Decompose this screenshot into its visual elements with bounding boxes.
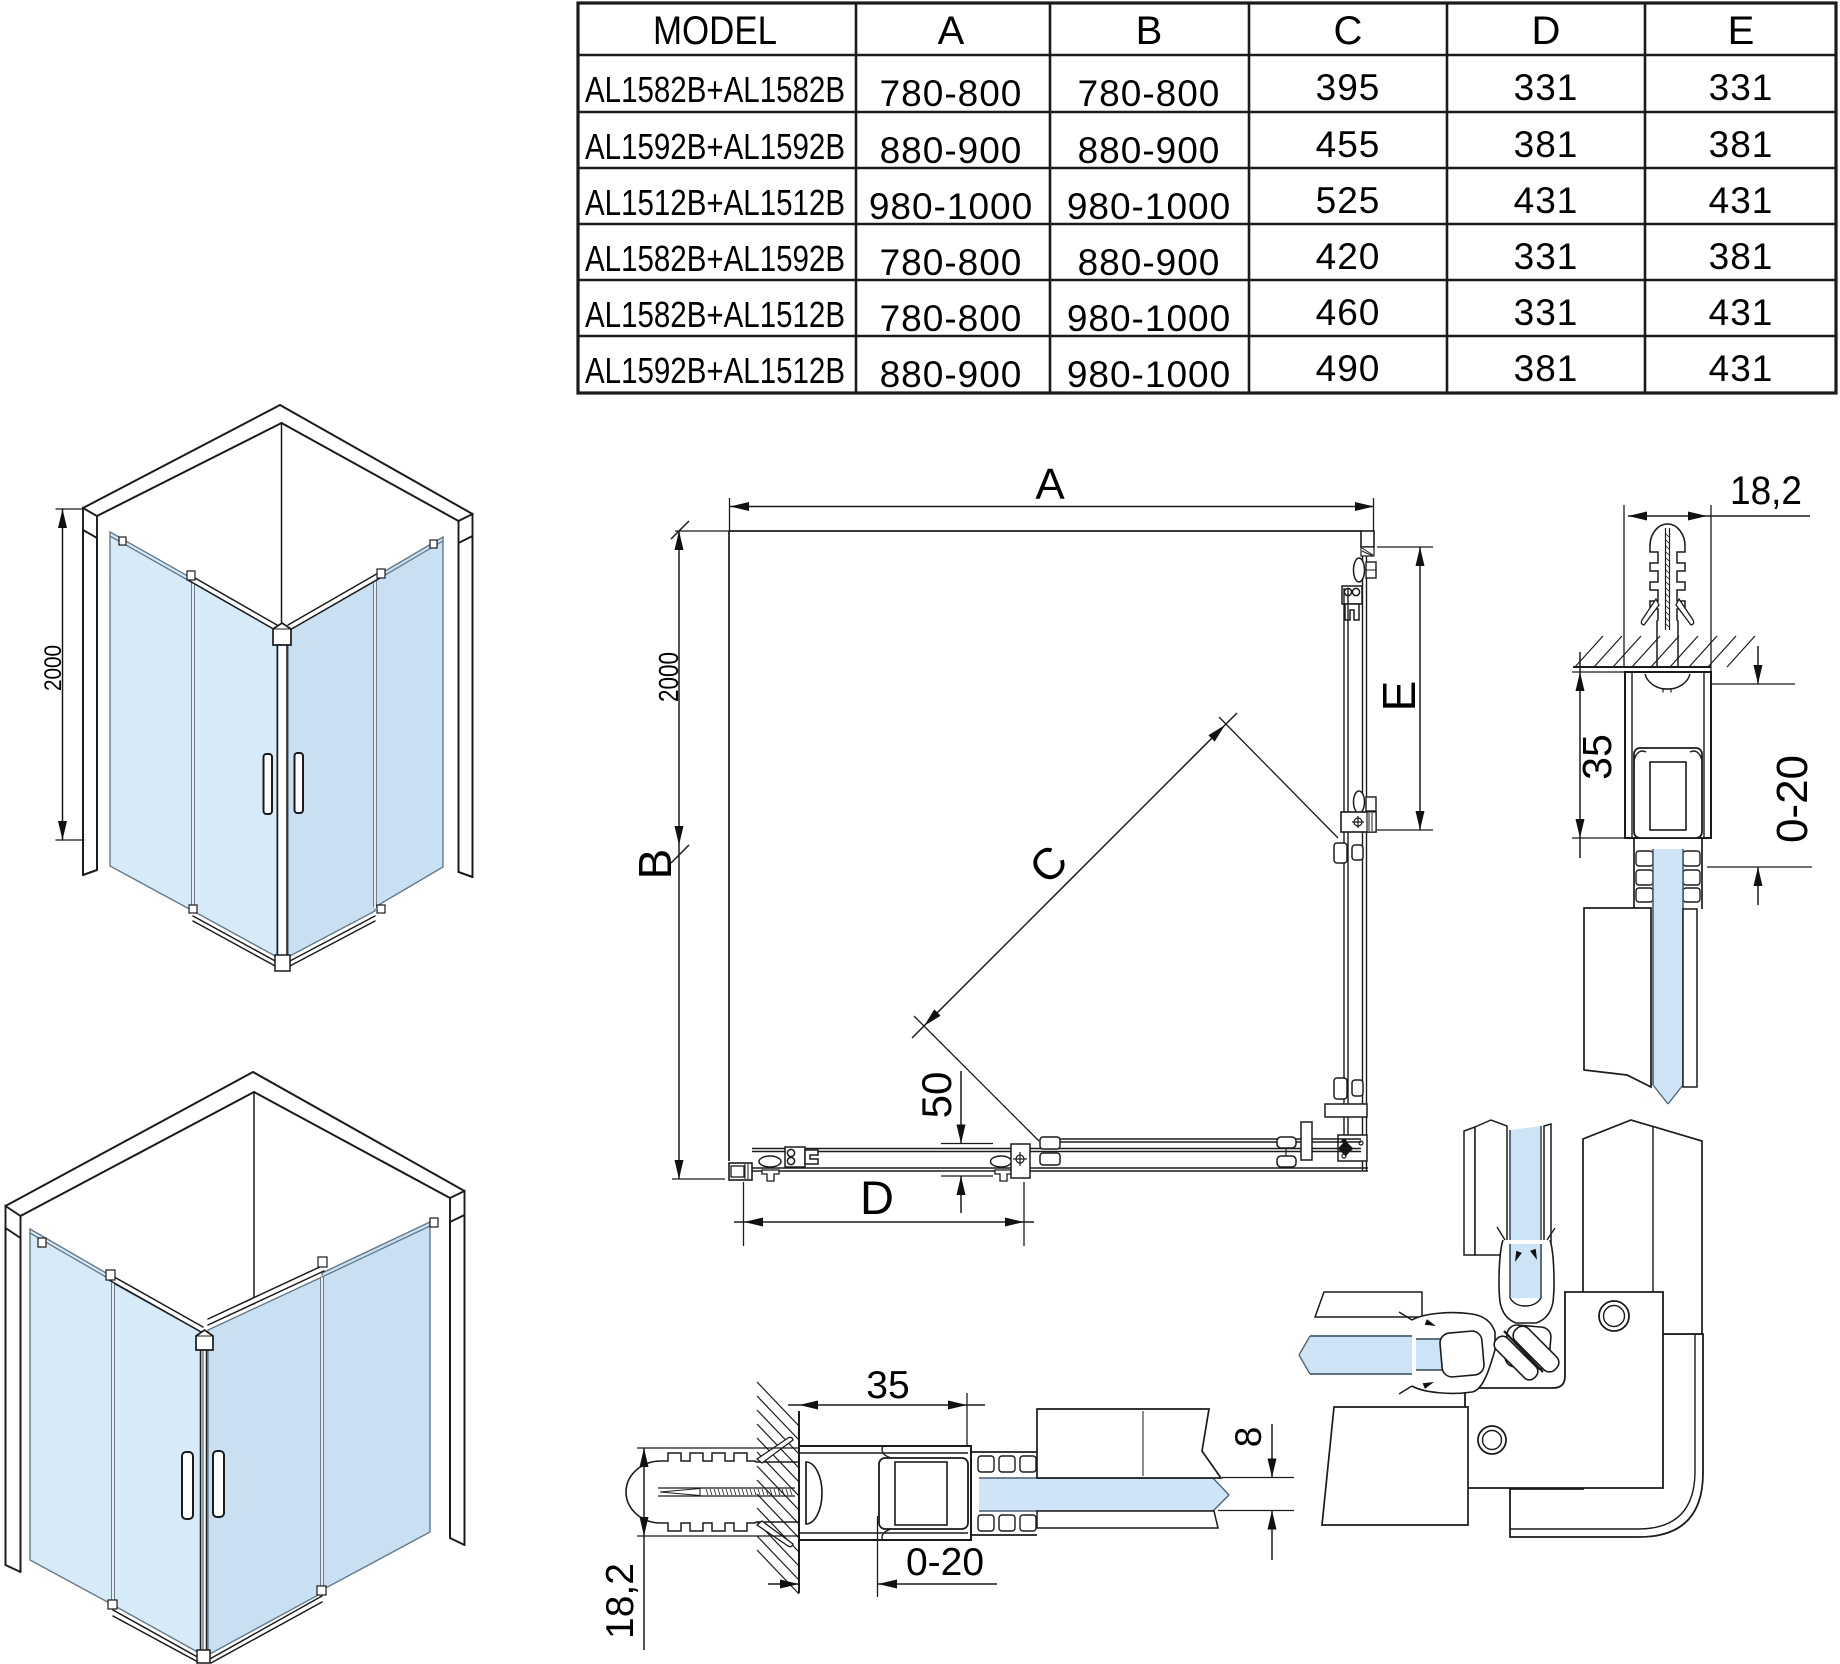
svg-text:381: 381: [1514, 348, 1579, 389]
svg-text:B: B: [1136, 9, 1163, 53]
svg-text:980-1000: 980-1000: [1067, 354, 1231, 395]
svg-text:395: 395: [1316, 67, 1381, 108]
svg-text:2000: 2000: [653, 652, 684, 702]
svg-text:880-900: 880-900: [880, 130, 1023, 171]
svg-text:35: 35: [866, 1364, 909, 1407]
svg-text:D: D: [860, 1171, 894, 1224]
svg-text:880-900: 880-900: [1078, 242, 1221, 283]
svg-text:MODEL: MODEL: [653, 9, 777, 53]
svg-text:E: E: [1728, 9, 1755, 53]
svg-text:AL1512B+AL1512B: AL1512B+AL1512B: [585, 182, 845, 223]
svg-text:490: 490: [1316, 348, 1381, 389]
svg-text:431: 431: [1514, 180, 1579, 221]
svg-text:420: 420: [1316, 236, 1381, 277]
svg-text:331: 331: [1514, 67, 1579, 108]
svg-text:E: E: [1373, 681, 1425, 712]
svg-text:455: 455: [1316, 124, 1381, 165]
svg-text:980-1000: 980-1000: [869, 186, 1033, 227]
svg-text:AL1592B+AL1592B: AL1592B+AL1592B: [585, 126, 845, 167]
svg-text:D: D: [1532, 9, 1561, 53]
svg-text:381: 381: [1514, 124, 1579, 165]
svg-text:18,2: 18,2: [599, 1563, 642, 1639]
svg-text:780-800: 780-800: [880, 298, 1023, 339]
svg-text:431: 431: [1709, 292, 1774, 333]
svg-text:50: 50: [913, 1072, 960, 1119]
svg-text:431: 431: [1709, 348, 1774, 389]
svg-text:8: 8: [1228, 1427, 1269, 1448]
svg-text:AL1592B+AL1512B: AL1592B+AL1512B: [585, 350, 845, 391]
svg-text:0-20: 0-20: [906, 1541, 984, 1584]
svg-text:880-900: 880-900: [1078, 130, 1221, 171]
svg-text:780-800: 780-800: [1078, 73, 1221, 114]
svg-text:C: C: [1020, 836, 1077, 893]
svg-text:331: 331: [1514, 236, 1579, 277]
svg-text:980-1000: 980-1000: [1067, 186, 1231, 227]
svg-text:780-800: 780-800: [880, 73, 1023, 114]
svg-text:381: 381: [1709, 236, 1774, 277]
svg-text:A: A: [938, 9, 965, 53]
svg-text:AL1582B+AL1582B: AL1582B+AL1582B: [585, 69, 845, 110]
svg-text:431: 431: [1709, 180, 1774, 221]
svg-text:AL1582B+AL1592B: AL1582B+AL1592B: [585, 238, 845, 279]
svg-text:B: B: [629, 849, 681, 880]
svg-text:525: 525: [1316, 180, 1381, 221]
svg-text:331: 331: [1709, 67, 1774, 108]
svg-text:381: 381: [1709, 124, 1774, 165]
svg-text:780-800: 780-800: [880, 242, 1023, 283]
svg-text:980-1000: 980-1000: [1067, 298, 1231, 339]
svg-text:331: 331: [1514, 292, 1579, 333]
svg-text:C: C: [1334, 9, 1363, 53]
svg-text:460: 460: [1316, 292, 1381, 333]
svg-text:880-900: 880-900: [880, 354, 1023, 395]
svg-text:2000: 2000: [40, 645, 67, 691]
svg-text:AL1582B+AL1512B: AL1582B+AL1512B: [585, 294, 845, 335]
svg-text:0-20: 0-20: [1768, 755, 1817, 843]
svg-text:18,2: 18,2: [1730, 469, 1802, 513]
svg-text:35: 35: [1574, 734, 1620, 780]
svg-text:A: A: [1035, 460, 1065, 509]
